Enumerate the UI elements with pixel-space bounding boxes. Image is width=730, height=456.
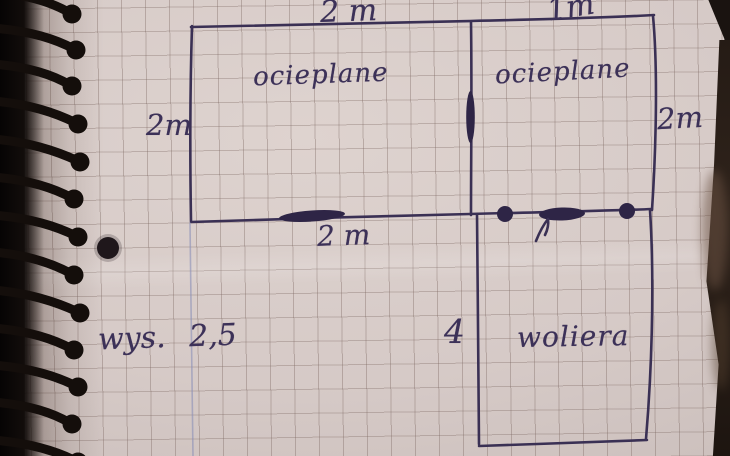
binding-coil-end [65,341,84,360]
notebook-photo: 2 m 1m ocieplane ocieplane 2m 2m 2 m wys… [0,0,730,456]
binding-coil-end [63,77,82,96]
binding-coil [0,402,70,423]
binding-coil-end [69,378,88,397]
binding-coil-end [69,115,88,134]
binding-coil [0,139,78,161]
binding-coil [0,290,78,312]
binding-coil-end [71,153,90,172]
binding-coil [0,215,76,236]
binding-coil [0,440,76,456]
binding-coil-end [63,415,82,434]
binding-coil [0,101,76,123]
binding-coil-end [71,304,90,323]
binding-coil [0,64,70,85]
binding-coil [0,28,74,49]
binding-coil-end [67,41,86,60]
binding-coil-end [69,228,88,247]
binding-coils [0,0,90,456]
binding-coil [0,252,72,274]
binding-coil-end [65,266,84,285]
binding-coil [0,365,76,386]
spiral-binding [0,0,730,456]
binding-coil [0,328,72,349]
binding-coil-end [65,190,84,209]
binding-coil [0,177,72,198]
binding-coil [0,0,70,13]
binding-coil-end [63,5,82,24]
